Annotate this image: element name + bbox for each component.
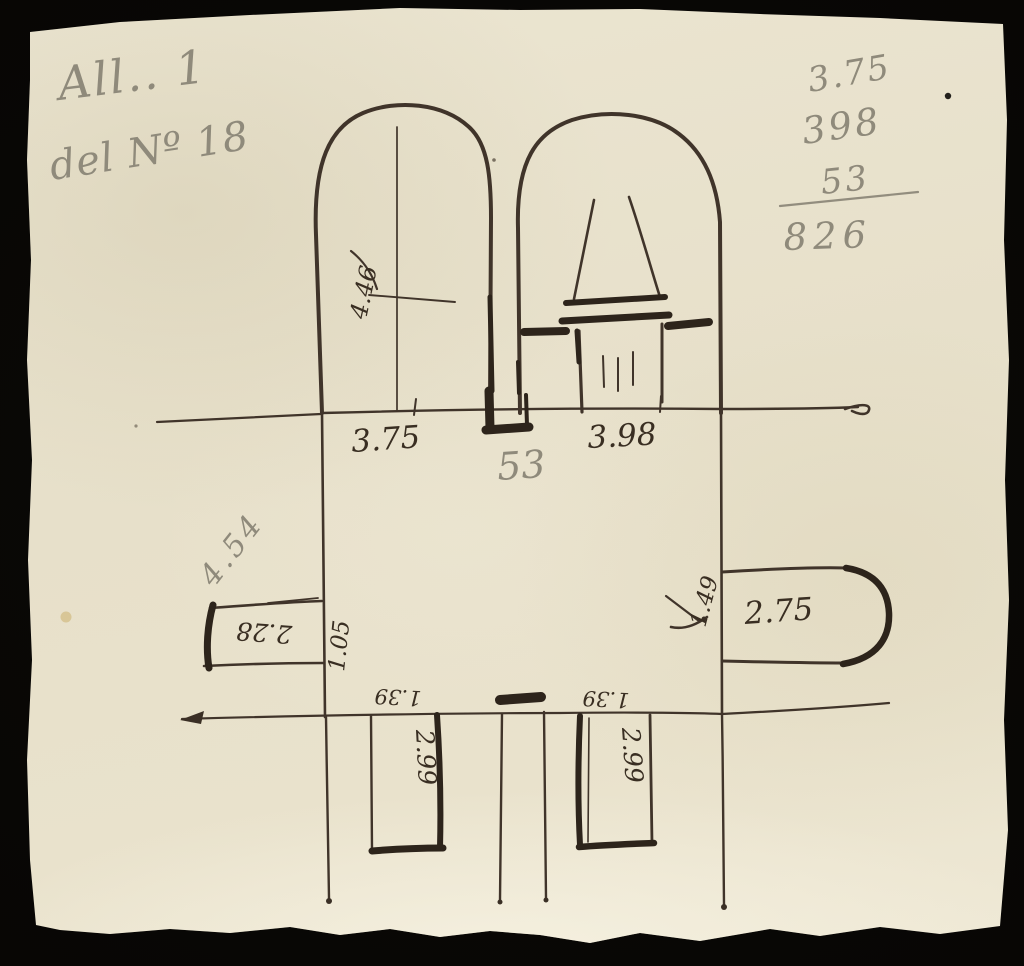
label-left-niche-depth: 1.05 bbox=[324, 619, 355, 673]
pencil-header-notes: All.. 1 del Nº 18 bbox=[46, 39, 252, 190]
bottom-right-room: 2.99 bbox=[579, 715, 655, 847]
body-left-wall-lower bbox=[326, 717, 329, 898]
left-arch-outline bbox=[316, 105, 491, 413]
corridor-cap bbox=[500, 697, 541, 700]
apse-stub-wall-right bbox=[668, 322, 709, 326]
right-apse: 2.75 1.49 bbox=[666, 568, 889, 664]
yellow-stain bbox=[61, 612, 72, 623]
body-right-wall bbox=[721, 413, 722, 714]
label-center-gap: 53 bbox=[496, 442, 547, 489]
lower-dimension-line bbox=[182, 713, 722, 719]
reference-note: del Nº 18 bbox=[46, 113, 252, 190]
right-apse-bottom bbox=[722, 661, 844, 663]
sum-addend-2: 398 bbox=[799, 99, 884, 153]
label-left-arch-depth: 4.46 bbox=[344, 263, 383, 322]
left-niche-end-wall bbox=[207, 605, 213, 668]
sum-addend-3: 53 bbox=[819, 158, 872, 203]
label-right-apse-depth: 1.49 bbox=[686, 573, 724, 629]
right-apse-cap bbox=[843, 568, 889, 664]
bottom-left-room: 2.99 bbox=[371, 715, 443, 851]
channel-u-right bbox=[526, 395, 527, 425]
bl-room-left bbox=[371, 716, 372, 850]
channel-left-wall bbox=[490, 297, 492, 391]
corridor-right-blob bbox=[544, 898, 549, 903]
apse-hatch-1 bbox=[603, 356, 604, 387]
left-niche-top bbox=[210, 601, 322, 608]
left-wall-end-blob bbox=[326, 898, 332, 904]
label-bottom-right-wall-depth: 1.39 bbox=[582, 686, 630, 712]
br-room-left bbox=[579, 716, 581, 845]
floor-plan-drawing: All.. 1 del Nº 18 3.75 398 53 826 bbox=[0, 0, 1024, 966]
lower-dimension-line-ext bbox=[722, 703, 889, 714]
left-arch-leader-line bbox=[369, 295, 455, 302]
upper-tick-1 bbox=[414, 399, 416, 415]
altar-bar-bottom bbox=[562, 315, 669, 321]
attachment-note: All.. 1 bbox=[51, 39, 210, 111]
corridor-left-blob bbox=[498, 900, 503, 905]
br-room-right bbox=[650, 715, 652, 843]
main-body-walls bbox=[322, 413, 727, 910]
label-bottom-left-wall-depth: 1.39 bbox=[374, 684, 422, 710]
br-room-left-double bbox=[588, 718, 589, 842]
sum-addend-1: 3.75 bbox=[805, 47, 894, 101]
tiny-speck-1 bbox=[134, 424, 137, 427]
right-arch bbox=[518, 114, 721, 413]
left-niche-bottom bbox=[204, 663, 323, 666]
altar-bar-top bbox=[566, 297, 665, 303]
bottom-corridor bbox=[498, 697, 549, 905]
tiny-speck-2 bbox=[492, 158, 496, 162]
body-right-wall-lower bbox=[722, 714, 724, 905]
upper-dimension-arrow-hook bbox=[845, 405, 869, 414]
corridor-right bbox=[544, 712, 546, 898]
ink-speck bbox=[945, 93, 951, 99]
body-left-wall bbox=[322, 413, 325, 717]
pencil-sum-column: 3.75 398 53 826 bbox=[780, 47, 951, 259]
corridor-left bbox=[500, 714, 502, 900]
upper-dimension-line bbox=[322, 407, 858, 413]
left-arch: 4.46 bbox=[316, 105, 491, 413]
label-right-apse-length: 2.75 bbox=[742, 591, 814, 632]
right-arch-outline bbox=[518, 114, 721, 413]
paper-specks bbox=[61, 158, 496, 622]
channel-right-wall bbox=[518, 362, 519, 393]
br-room-bottom bbox=[579, 843, 654, 847]
left-niche: 2.28 1.05 bbox=[204, 598, 355, 673]
lower-dimension-arrowhead bbox=[180, 711, 204, 724]
label-left-arch-width: 3.75 bbox=[350, 419, 421, 460]
label-bottom-left-room-length: 2.99 bbox=[410, 728, 442, 786]
right-wall-end-blob bbox=[721, 904, 727, 910]
apse-stub-wall-left bbox=[524, 331, 566, 332]
bl-room-bottom bbox=[372, 848, 443, 851]
apse-passage-left-heavy bbox=[577, 331, 579, 362]
upper-dimension-line-left bbox=[157, 414, 321, 422]
label-left-wall-note: 4.54 bbox=[192, 506, 271, 594]
apse-trapezoid-right bbox=[629, 197, 660, 297]
photograph-background: All.. 1 del Nº 18 3.75 398 53 826 bbox=[0, 0, 1024, 966]
label-bottom-right-room-length: 2.99 bbox=[616, 725, 649, 784]
apse-trapezoid-left bbox=[574, 200, 594, 299]
label-left-niche-length: 2.28 bbox=[235, 616, 294, 649]
channel-u-bottom bbox=[486, 427, 529, 430]
sum-total: 826 bbox=[783, 213, 873, 259]
right-apse-top bbox=[722, 568, 848, 572]
label-right-arch-width: 3.98 bbox=[587, 416, 658, 456]
channel-u-left bbox=[489, 391, 490, 428]
